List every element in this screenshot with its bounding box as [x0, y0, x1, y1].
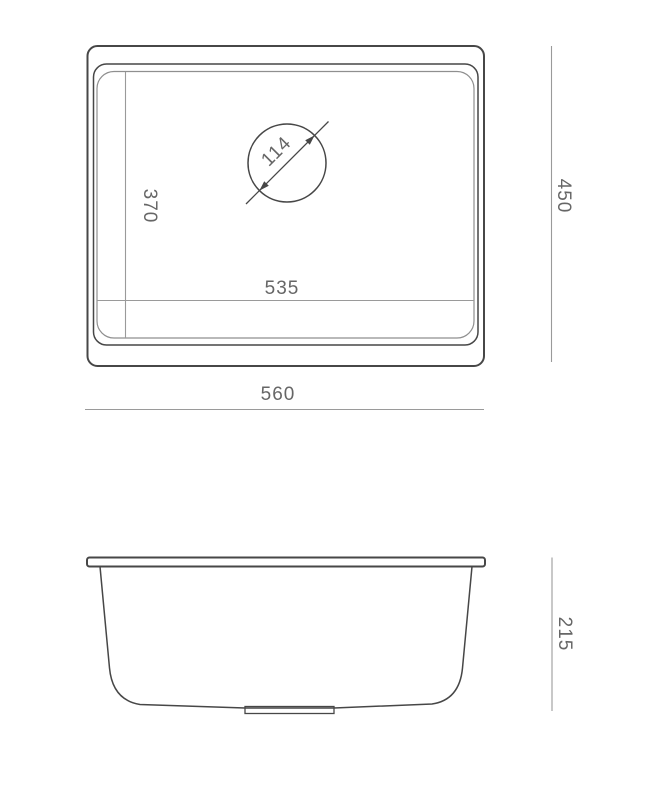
technical-drawing-page: 114 370 535 560 450 215 [0, 0, 646, 800]
label-bowl-height: 215 [553, 617, 575, 652]
sink-top-view [85, 46, 552, 410]
sink-rim-profile [87, 558, 485, 567]
drain-diameter-line [246, 122, 329, 205]
label-overall-width: 560 [261, 384, 296, 406]
bowl-profile [100, 567, 472, 709]
label-bowl-depth: 370 [138, 189, 160, 224]
sink-side-view [87, 558, 552, 714]
drawing-linework [0, 0, 646, 800]
label-overall-depth: 450 [552, 179, 574, 214]
label-bowl-width: 535 [265, 278, 300, 300]
